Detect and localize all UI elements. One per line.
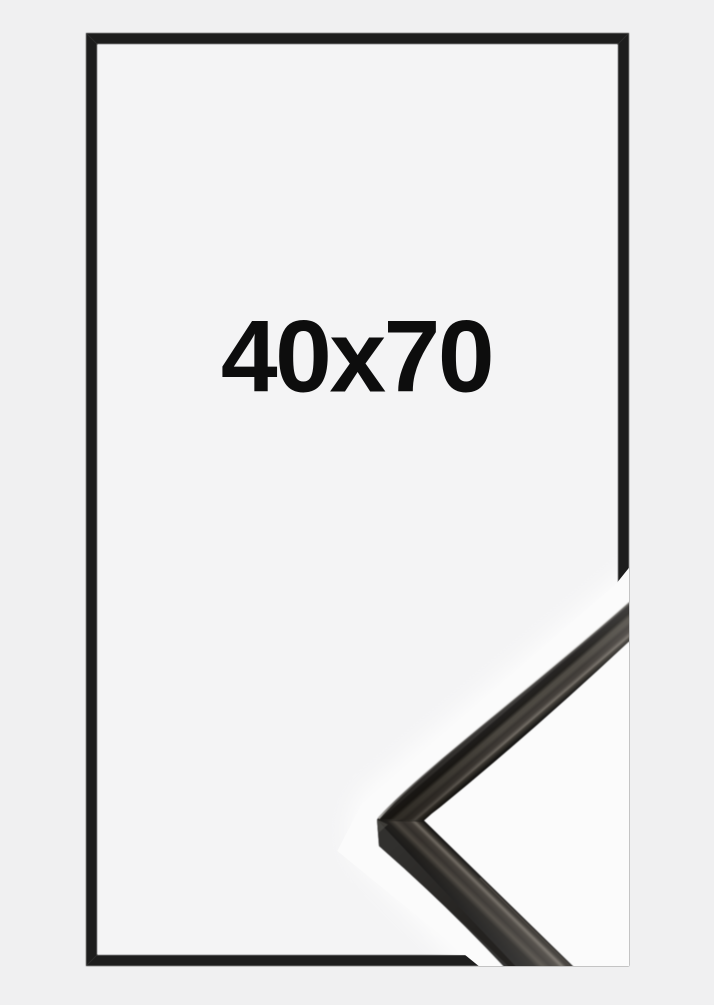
svg-text:40x70: 40x70 (221, 300, 492, 414)
